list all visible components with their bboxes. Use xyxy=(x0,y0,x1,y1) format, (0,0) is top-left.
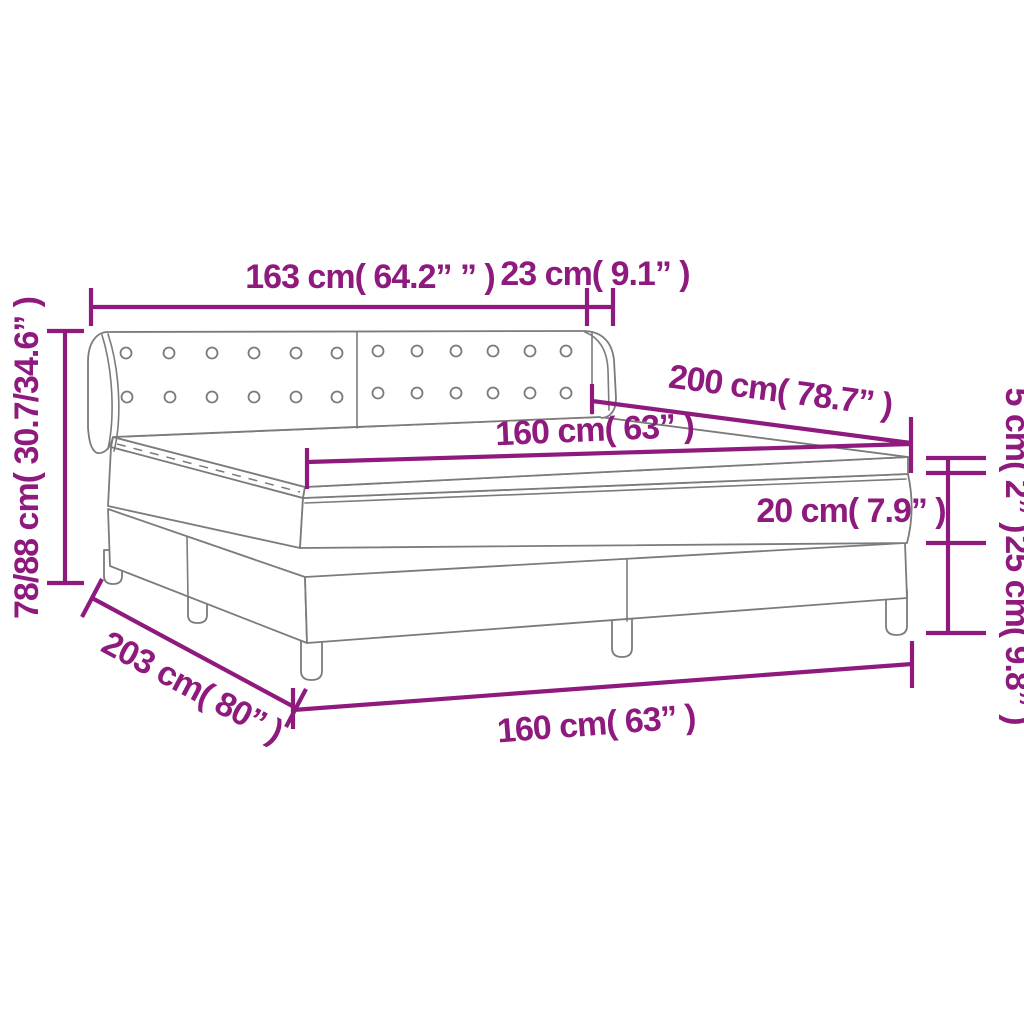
label-base-height: 25 cm( 9.8” ) xyxy=(998,535,1024,724)
label-topper-height: 5 cm( 2” ) xyxy=(998,388,1024,533)
label-mattress-height: 20 cm( 7.9” ) xyxy=(756,492,945,530)
label-base-width: 160 cm( 63” ) xyxy=(496,698,697,751)
label-wing-depth: 23 cm( 9.1” ) xyxy=(500,255,689,293)
label-total-height: 78/88 cm( 30.7/34.6” ) xyxy=(8,297,46,619)
label-headboard-width: 163 cm( 64.2” ” ) xyxy=(245,258,494,296)
dimension-diagram: 163 cm( 64.2” ” ) 23 cm( 9.1” ) 200 cm( … xyxy=(0,0,1024,1024)
bed-diagram-canvas: 163 cm( 64.2” ” ) 23 cm( 9.1” ) 200 cm( … xyxy=(0,0,1024,1024)
